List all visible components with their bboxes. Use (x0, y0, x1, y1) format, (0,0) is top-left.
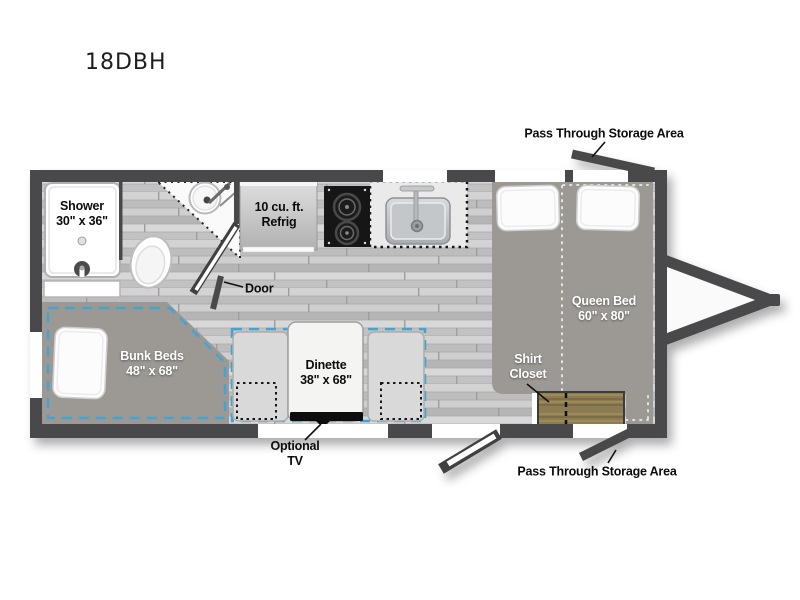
shirt-closet (538, 392, 624, 426)
bathroom-wall (234, 182, 240, 224)
queen-pillow-right (576, 185, 639, 231)
label-door: Door (245, 281, 273, 296)
window-top-kitchen (383, 170, 447, 182)
label-bunk-beds: Bunk Beds48" x 68" (120, 349, 184, 380)
label-refrigerator: 10 cu. ft.Refrig (255, 200, 304, 231)
shower-drain (78, 237, 86, 245)
pointer-pass-through-top (592, 142, 605, 157)
model-title: 18DBH (85, 50, 167, 75)
window-top-bed-left (495, 170, 565, 182)
pass-through-hatch-top (572, 154, 654, 172)
bunk-pillow (52, 327, 107, 399)
optional-tv-unit (290, 412, 363, 421)
label-shirt-closet: ShirtCloset (509, 352, 546, 383)
label-shower: Shower30" x 36" (56, 199, 108, 230)
closet-trim (532, 393, 537, 425)
bath-cabinet (44, 281, 120, 297)
pointer-pass-through-bottom (608, 450, 616, 463)
queen-pillow-left (496, 185, 559, 231)
label-dinette: Dinette38" x 68" (300, 358, 352, 389)
trailer-tongue (652, 252, 780, 348)
floorplan-drawing (0, 0, 800, 600)
dinette-bench-right (368, 332, 424, 421)
window-left-bunk (30, 332, 42, 398)
window-top-bed-right (573, 170, 628, 182)
dinette-bench-left (233, 332, 288, 421)
hitch-coupler (764, 294, 780, 306)
wall-top (30, 170, 667, 182)
wall-right (655, 170, 667, 438)
shower-partition-wall (119, 182, 123, 260)
label-optional-tv: OptionalTV (270, 439, 319, 470)
label-pass-through-bottom: Pass Through Storage Area (517, 464, 676, 479)
entry-door-open (441, 434, 499, 469)
floorplan-page: 18DBH Pass Through Storage Area Shower30… (0, 0, 800, 600)
label-pass-through-top: Pass Through Storage Area (524, 126, 683, 141)
trailer-body (30, 154, 780, 469)
window-bottom-dinette (258, 424, 388, 438)
label-queen-bed: Queen Bed60" x 80" (572, 294, 636, 325)
